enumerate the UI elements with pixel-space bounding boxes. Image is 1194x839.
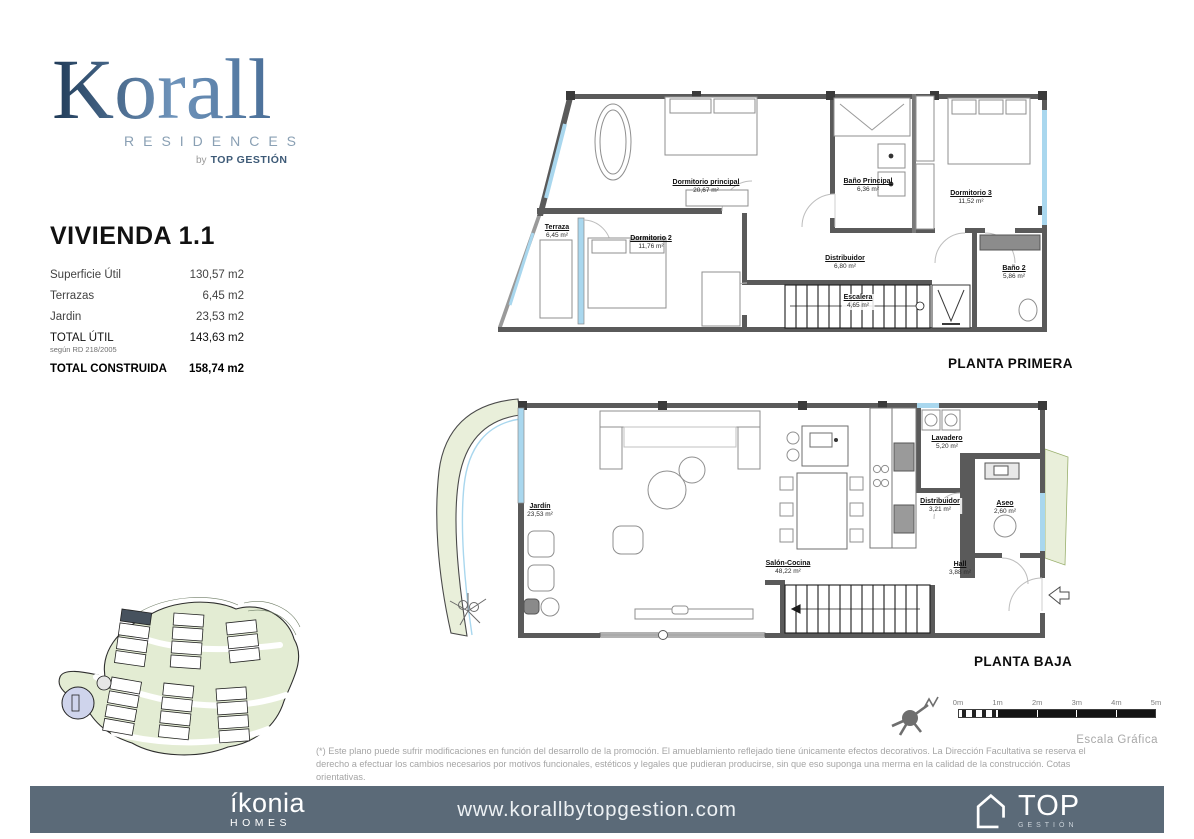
room-label-terraza: Terraza 6,45 m² bbox=[545, 224, 569, 240]
row-label: Superficie Útil bbox=[50, 269, 121, 281]
row-value: 6,45 m2 bbox=[202, 290, 244, 302]
room-label-dormitorio-3: Dormitorio 3 11,52 m² bbox=[950, 190, 992, 206]
surface-table: Superficie Útil 130,57 m2 Terrazas 6,45 … bbox=[50, 269, 244, 384]
scale-bar-segments bbox=[958, 709, 1156, 718]
logo-text: Korall bbox=[52, 41, 272, 137]
row-label: Terrazas bbox=[50, 290, 94, 302]
page-title: VIVIENDA 1.1 bbox=[50, 222, 215, 251]
planta-primera-drawing bbox=[480, 80, 1070, 352]
plan-sheet: Korall RESIDENCES byTOP GESTIÓN VIVIENDA… bbox=[0, 0, 1194, 839]
scale-tick-labels: 0m 1m 2m 3m 4m 5m bbox=[958, 698, 1156, 709]
room-label-distribuidor-baja: Distribuidor 3,21 m² bbox=[918, 498, 962, 514]
table-row: Jardin 23,53 m2 bbox=[50, 311, 244, 323]
row-label: TOTAL CONSTRUIDA bbox=[50, 363, 167, 375]
room-label-hall: Hall 3,88 m² bbox=[949, 561, 971, 577]
planta-primera-plan: Dormitorio principal 20,67 m² Dormitorio… bbox=[480, 80, 1070, 352]
room-label-salon-cocina: Salón-Cocina 48,22 m² bbox=[766, 560, 811, 576]
house-cluster bbox=[226, 620, 260, 663]
void-shaft bbox=[932, 285, 970, 328]
room-label-escalera: Escalera 4,65 m² bbox=[842, 294, 875, 310]
table-row: Superficie Útil 130,57 m2 bbox=[50, 269, 244, 281]
room-label-dormitorio-principal: Dormitorio principal 20,67 m² bbox=[673, 179, 740, 195]
top-gestion-logo: TOP GESTIÓN bbox=[968, 789, 1080, 831]
row-label: Jardin bbox=[50, 311, 81, 323]
garden-band bbox=[437, 399, 520, 636]
caption-planta-baja: PLANTA BAJA bbox=[974, 654, 1072, 669]
side-garden bbox=[1045, 449, 1068, 565]
planta-baja-plan: Jardín 23,53 m² Salón-Cocina 48,22 m² La… bbox=[420, 393, 1070, 645]
planta-baja-drawing bbox=[420, 393, 1070, 645]
house-icon bbox=[968, 789, 1012, 831]
table-row: TOTAL CONSTRUIDA 158,74 m2 bbox=[50, 363, 244, 375]
stairs bbox=[785, 585, 930, 633]
row-label: TOTAL ÚTIL bbox=[50, 332, 114, 344]
row-value: 143,63 m2 bbox=[190, 332, 244, 344]
disclaimer-text: (*) Este plano puede sufrir modificacion… bbox=[316, 745, 1094, 784]
room-label-jardin: Jardín 23,53 m² bbox=[527, 503, 553, 519]
row-note: según RD 218/2005 bbox=[50, 345, 244, 354]
room-label-bano-principal: Baño Principal 6,36 m² bbox=[843, 178, 892, 194]
footer-bar: íkonia HOMES www.korallbytopgestion.com … bbox=[30, 786, 1164, 833]
caption-planta-primera: PLANTA PRIMERA bbox=[948, 356, 1073, 371]
logo-residences: RESIDENCES bbox=[124, 133, 305, 149]
room-label-lavadero: Lavadero 5,20 m² bbox=[931, 435, 962, 451]
row-value: 158,74 m2 bbox=[189, 363, 244, 375]
site-plan bbox=[48, 583, 316, 769]
scale-bar: 0m 1m 2m 3m 4m 5m bbox=[958, 698, 1156, 724]
entrance-arrow bbox=[1049, 587, 1069, 604]
logo-byline: byTOP GESTIÓN bbox=[196, 154, 287, 166]
top-text: TOP bbox=[1018, 792, 1080, 821]
table-row: TOTAL ÚTIL 143,63 m2 bbox=[50, 332, 244, 344]
row-value: 130,57 m2 bbox=[190, 269, 244, 281]
logo-by-brand: TOP GESTIÓN bbox=[211, 154, 288, 166]
room-label-bano-2: Baño 2 5,86 m² bbox=[1002, 265, 1025, 281]
pool bbox=[62, 687, 94, 719]
room-label-dormitorio-2: Dormitorio 2 11,76 m² bbox=[630, 235, 672, 251]
row-value: 23,53 m2 bbox=[196, 311, 244, 323]
table-row: Terrazas 6,45 m2 bbox=[50, 290, 244, 302]
north-arrow-icon bbox=[888, 694, 940, 740]
room-label-aseo: Aseo 2,60 m² bbox=[994, 500, 1016, 516]
logo-by-word: by bbox=[196, 155, 207, 166]
room-label-distribuidor: Distribuidor 6,80 m² bbox=[825, 255, 865, 271]
gestion-text: GESTIÓN bbox=[1018, 822, 1080, 829]
